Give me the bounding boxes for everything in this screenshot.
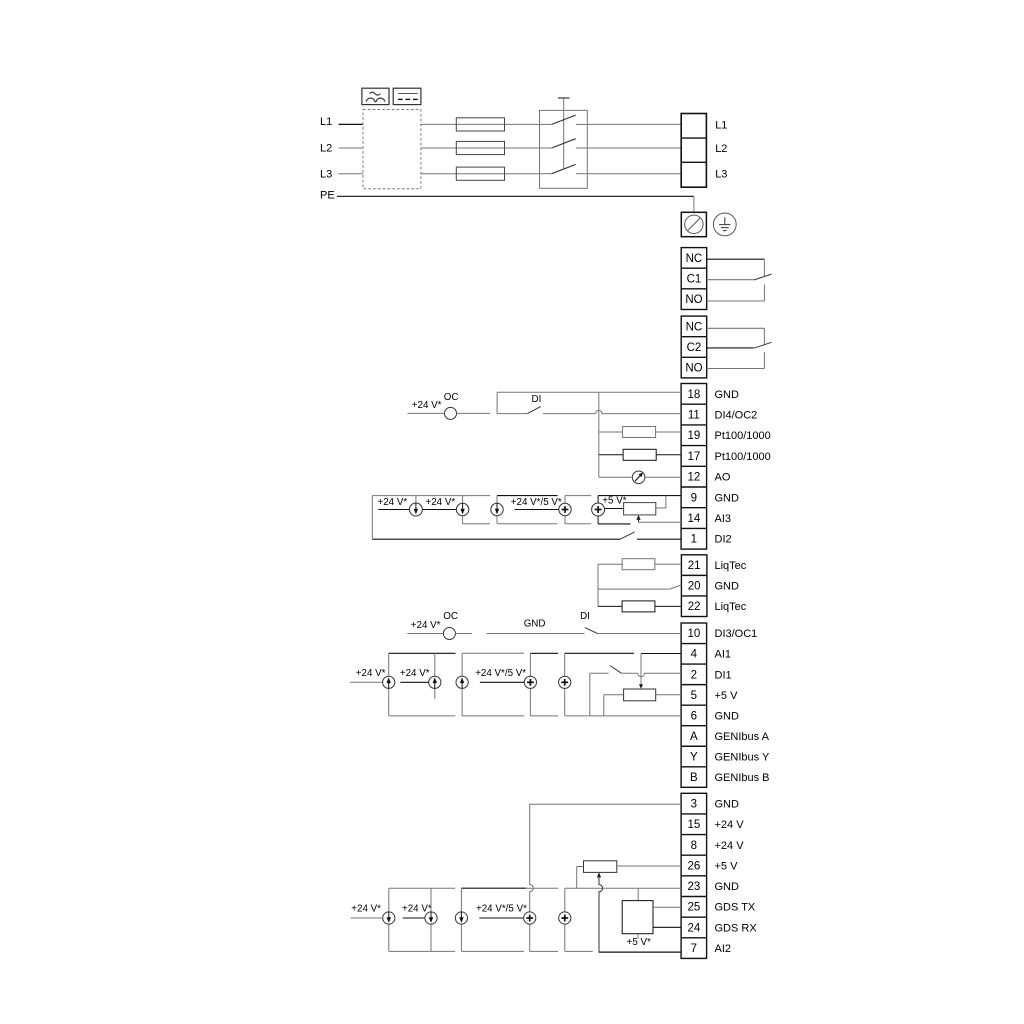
svg-text:5: 5 <box>691 690 697 702</box>
svg-text:DI1: DI1 <box>715 669 732 681</box>
svg-text:GENIbus Y: GENIbus Y <box>715 751 770 763</box>
svg-text:+24 V*/5 V*: +24 V*/5 V* <box>511 497 562 508</box>
svg-text:C1: C1 <box>687 273 702 285</box>
svg-text:AI3: AI3 <box>715 513 732 525</box>
svg-text:DI: DI <box>532 394 542 405</box>
svg-text:21: 21 <box>688 560 701 572</box>
svg-text:+5 V*: +5 V* <box>602 496 626 507</box>
svg-text:NO: NO <box>685 363 702 375</box>
svg-text:LiqTec: LiqTec <box>715 601 747 613</box>
svg-text:+24 V*: +24 V* <box>412 400 442 411</box>
svg-text:+24 V*: +24 V* <box>351 903 381 914</box>
svg-text:B: B <box>690 772 698 784</box>
svg-text:GND: GND <box>715 710 740 722</box>
svg-text:4: 4 <box>691 649 698 661</box>
svg-text:+24 V*/5 V*: +24 V*/5 V* <box>476 903 527 914</box>
svg-text:GDS RX: GDS RX <box>715 922 758 934</box>
svg-text:+24 V*/5 V*: +24 V*/5 V* <box>475 668 526 679</box>
svg-text:GDS TX: GDS TX <box>715 902 756 914</box>
svg-text:+24 V*: +24 V* <box>356 668 386 679</box>
svg-text:17: 17 <box>687 451 700 463</box>
svg-text:Y: Y <box>690 751 698 763</box>
svg-text:Pt100/1000: Pt100/1000 <box>715 430 771 442</box>
svg-text:PE: PE <box>320 190 335 202</box>
svg-text:LiqTec: LiqTec <box>715 560 747 572</box>
svg-text:NC: NC <box>686 321 703 333</box>
svg-text:11: 11 <box>688 409 700 421</box>
svg-text:GND: GND <box>715 881 740 893</box>
svg-text:+24 V*: +24 V* <box>426 497 456 508</box>
svg-text:8: 8 <box>691 840 697 852</box>
svg-text:22: 22 <box>688 601 701 613</box>
svg-text:9: 9 <box>691 492 697 504</box>
svg-text:OC: OC <box>444 392 459 403</box>
svg-text:L3: L3 <box>715 169 727 181</box>
svg-text:3: 3 <box>691 799 697 811</box>
svg-text:AI2: AI2 <box>715 943 732 955</box>
svg-text:+24 V*: +24 V* <box>378 497 408 508</box>
svg-text:NC: NC <box>686 253 703 265</box>
svg-text:GND: GND <box>715 389 740 401</box>
svg-text:1: 1 <box>691 534 697 546</box>
svg-text:+5 V: +5 V <box>715 860 739 872</box>
svg-text:24: 24 <box>687 922 700 934</box>
svg-text:NO: NO <box>685 294 702 306</box>
svg-text:GENIbus B: GENIbus B <box>715 772 770 784</box>
svg-text:AO: AO <box>715 472 731 484</box>
svg-text:C2: C2 <box>687 342 702 354</box>
svg-text:DI3/OC1: DI3/OC1 <box>715 628 758 640</box>
svg-text:15: 15 <box>687 819 700 831</box>
svg-text:20: 20 <box>688 581 701 593</box>
svg-text:14: 14 <box>687 513 700 525</box>
svg-text:19: 19 <box>687 430 700 442</box>
svg-text:GND: GND <box>715 581 740 593</box>
svg-text:25: 25 <box>687 902 700 914</box>
svg-text:2: 2 <box>691 669 697 681</box>
svg-text:OC: OC <box>443 611 458 622</box>
svg-text:+24 V: +24 V <box>715 840 745 852</box>
svg-text:+24 V*: +24 V* <box>411 620 441 631</box>
svg-text:+5 V*: +5 V* <box>627 937 651 948</box>
svg-text:GND: GND <box>715 492 740 504</box>
svg-text:7: 7 <box>691 943 697 955</box>
svg-text:18: 18 <box>687 389 700 401</box>
svg-text:DI4/OC2: DI4/OC2 <box>715 409 758 421</box>
svg-text:A: A <box>690 731 698 743</box>
svg-text:GND: GND <box>715 799 740 811</box>
svg-text:Pt100/1000: Pt100/1000 <box>715 451 771 463</box>
svg-text:+24 V: +24 V <box>715 819 745 831</box>
svg-text:AI1: AI1 <box>715 649 732 661</box>
svg-text:23: 23 <box>687 881 700 893</box>
svg-text:L3: L3 <box>320 168 332 180</box>
svg-text:10: 10 <box>687 628 700 640</box>
svg-text:DI2: DI2 <box>715 534 732 546</box>
svg-text:12: 12 <box>687 472 700 484</box>
svg-text:6: 6 <box>691 710 697 722</box>
svg-text:L2: L2 <box>320 142 332 154</box>
svg-text:GENIbus A: GENIbus A <box>715 731 770 743</box>
svg-text:L1: L1 <box>715 119 727 131</box>
svg-text:+5 V: +5 V <box>715 690 739 702</box>
svg-text:GND: GND <box>524 618 546 629</box>
svg-text:26: 26 <box>687 860 700 872</box>
svg-text:DI: DI <box>580 611 590 622</box>
svg-text:L1: L1 <box>320 116 332 128</box>
svg-text:+24 V*: +24 V* <box>400 668 430 679</box>
svg-text:L2: L2 <box>715 143 727 155</box>
